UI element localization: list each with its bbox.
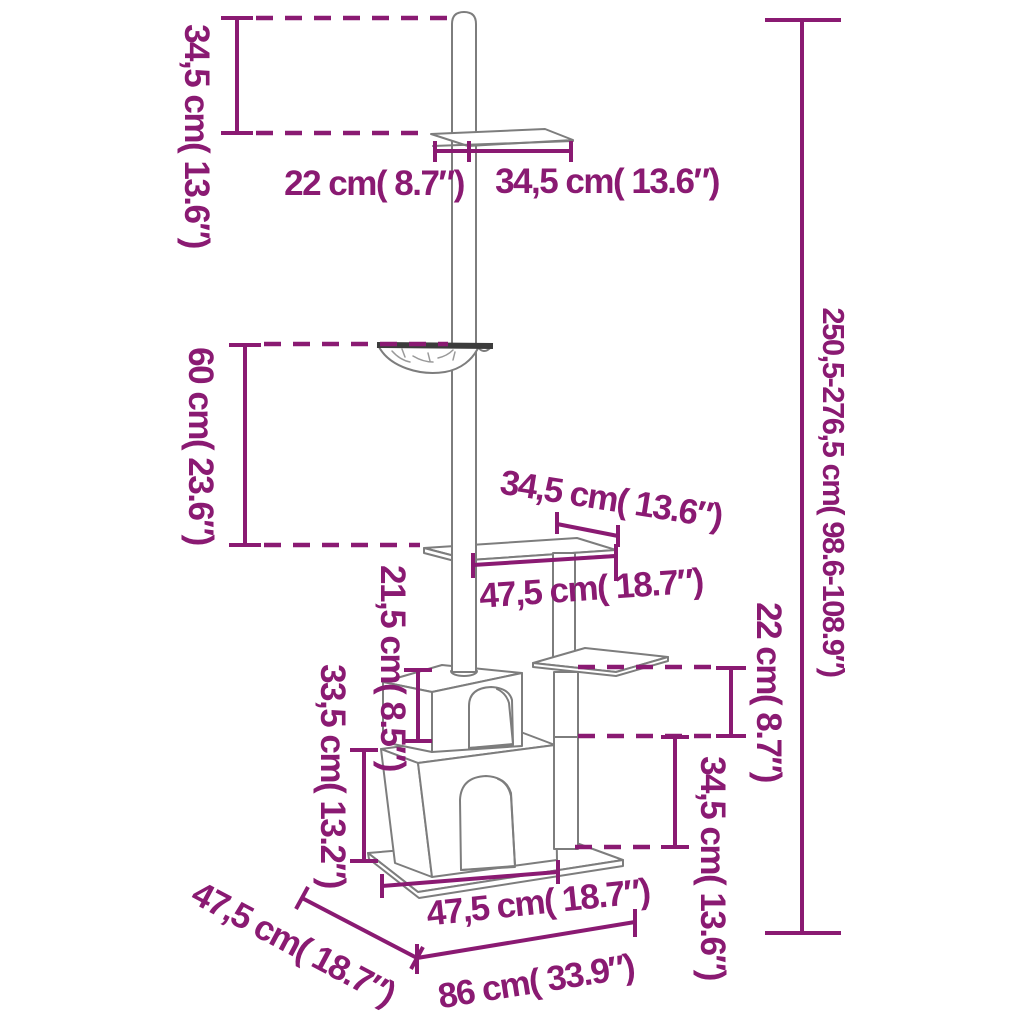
dim-label-cube-height: 21,5 cm( 8.5″) [372, 565, 412, 771]
dim-side-shelf-height [578, 667, 746, 737]
dim-hammock-height [229, 344, 448, 546]
product-drawing [368, 12, 668, 898]
dim-side-lower-height [575, 737, 689, 848]
dim-label-house-height: 33,5 cm( 13.2″) [312, 664, 352, 888]
dim-label-side-lower-height: 34,5 cm( 13.6″) [692, 756, 732, 980]
dim-label-top-shelf-right: 34,5 cm( 13.6″) [495, 162, 719, 202]
dimension-diagram: 34,5 cm( 13.6″) 22 cm( 8.7″) 34,5 cm( 13… [0, 0, 1024, 1024]
dim-label-total-height: 250,5-276,5 cm( 98.6-108.9″) [815, 307, 851, 676]
dim-label-hammock-height: 60 cm( 23.6″) [180, 347, 220, 545]
dim-top-section [221, 18, 447, 133]
cat-tree-line-art [0, 0, 1024, 1024]
right-post-lower [554, 672, 578, 849]
dim-label-side-shelf-height: 22 cm( 8.7″) [748, 602, 788, 782]
dim-label-top-shelf-left: 22 cm( 8.7″) [284, 164, 464, 204]
dim-label-top-section-height: 34,5 cm( 13.6″) [176, 24, 216, 248]
